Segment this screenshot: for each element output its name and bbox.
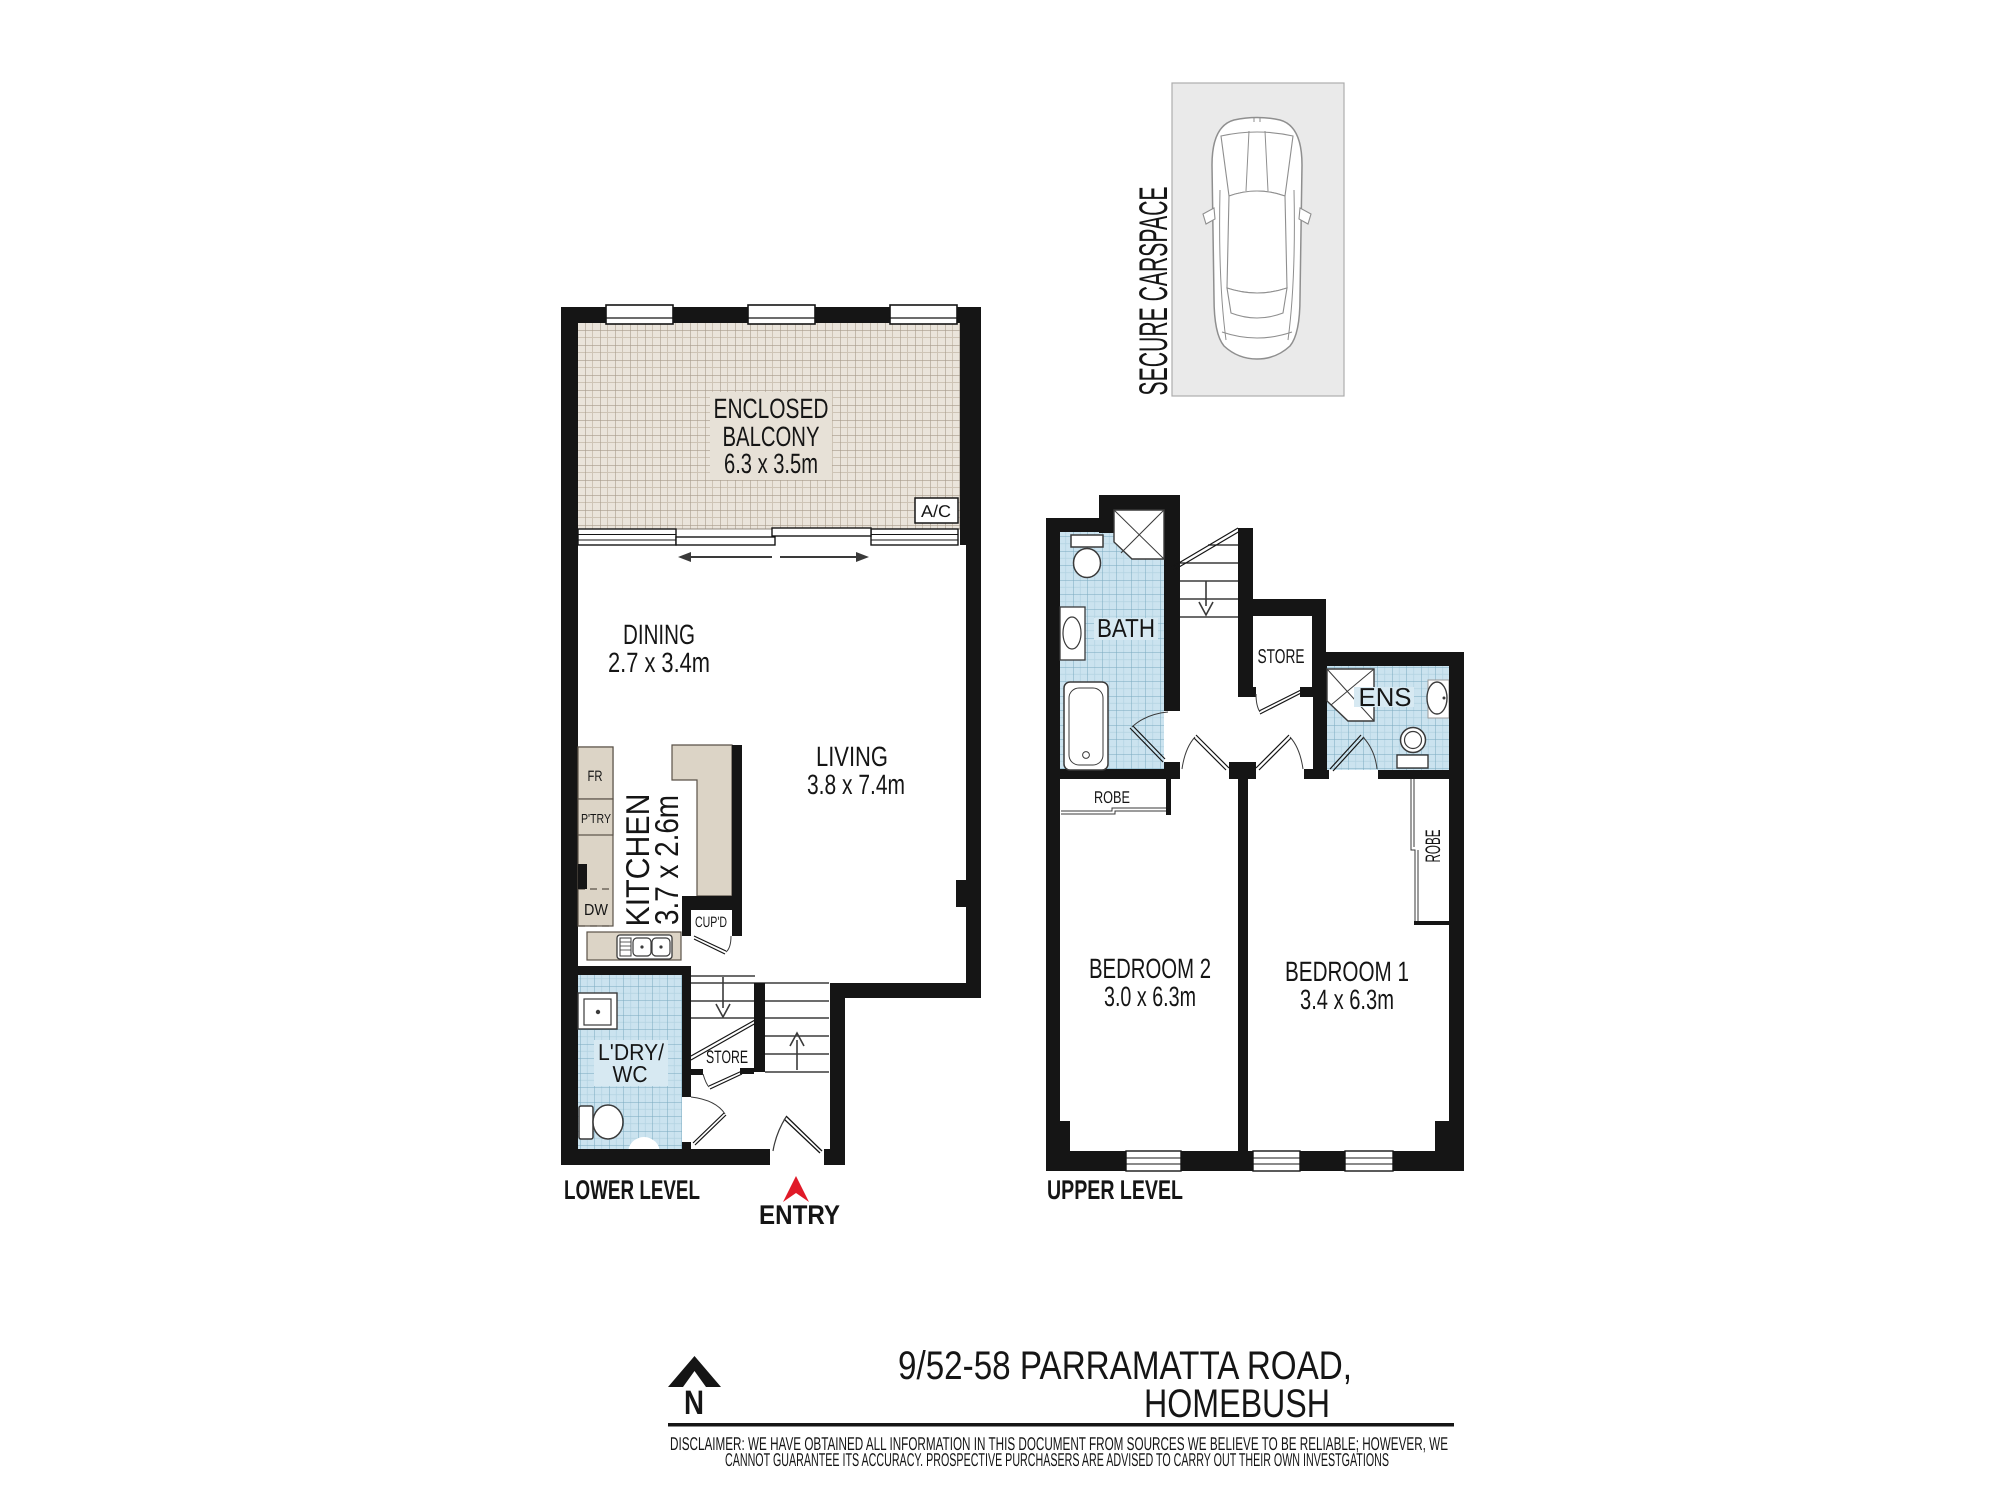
svg-text:ENTRY: ENTRY: [759, 1200, 840, 1230]
svg-text:A/C: A/C: [921, 502, 951, 521]
svg-text:UPPER LEVEL: UPPER LEVEL: [1047, 1175, 1183, 1205]
svg-text:BATH: BATH: [1097, 613, 1155, 643]
svg-text:ENCLOSED: ENCLOSED: [714, 393, 829, 424]
svg-text:CUP'D: CUP'D: [695, 914, 727, 931]
svg-text:3.8 x 7.4m: 3.8 x 7.4m: [807, 769, 905, 800]
svg-text:3.4 x 6.3m: 3.4 x 6.3m: [1300, 984, 1394, 1015]
svg-text:ROBE: ROBE: [1094, 788, 1130, 807]
svg-text:2.7 x 3.4m: 2.7 x 3.4m: [608, 647, 710, 678]
svg-text:WC: WC: [613, 1061, 648, 1087]
svg-text:DINING: DINING: [623, 619, 695, 650]
svg-text:P'TRY: P'TRY: [581, 811, 611, 826]
svg-text:ENS: ENS: [1359, 682, 1412, 712]
svg-text:LOWER LEVEL: LOWER LEVEL: [564, 1175, 700, 1205]
svg-text:CANNOT GUARANTEE ITS ACCURACY.: CANNOT GUARANTEE ITS ACCURACY. PROSPECTI…: [725, 1449, 1389, 1470]
svg-text:N: N: [684, 1384, 704, 1422]
svg-text:3.7 x 2.6m: 3.7 x 2.6m: [648, 795, 685, 925]
svg-text:6.3 x 3.5m: 6.3 x 3.5m: [724, 448, 818, 479]
svg-text:DW: DW: [584, 902, 609, 919]
svg-text:BEDROOM 1: BEDROOM 1: [1285, 956, 1409, 987]
svg-text:SECURE CARSPACE: SECURE CARSPACE: [1132, 187, 1176, 396]
svg-text:HOMEBUSH: HOMEBUSH: [1144, 1382, 1330, 1426]
svg-text:FR: FR: [588, 768, 603, 785]
svg-text:3.0 x 6.3m: 3.0 x 6.3m: [1104, 981, 1196, 1012]
svg-text:BEDROOM 2: BEDROOM 2: [1089, 953, 1211, 984]
svg-text:STORE: STORE: [706, 1047, 748, 1067]
svg-text:STORE: STORE: [1258, 646, 1305, 668]
svg-text:LIVING: LIVING: [816, 741, 888, 772]
svg-text:ROBE: ROBE: [1422, 830, 1445, 863]
